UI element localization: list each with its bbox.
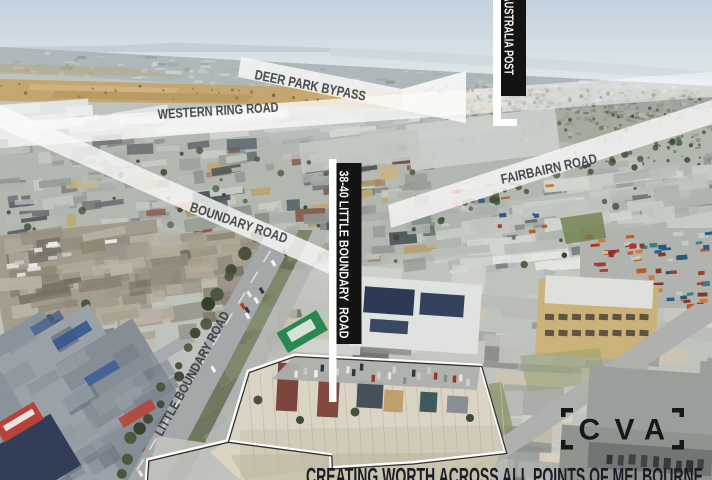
svg-text:C: C: [579, 414, 601, 447]
svg-text:CREATING WORTH ACROSS ALL POIN: CREATING WORTH ACROSS ALL POINTS OF MELB…: [306, 464, 703, 480]
svg-text:A: A: [644, 414, 665, 447]
svg-text:V: V: [615, 414, 635, 447]
svg-text:AUSTRALIA POST: AUSTRALIA POST: [502, 0, 516, 75]
svg-text:38-40 LITTLE BOUNDARY ROAD: 38-40 LITTLE BOUNDARY ROAD: [337, 171, 351, 339]
